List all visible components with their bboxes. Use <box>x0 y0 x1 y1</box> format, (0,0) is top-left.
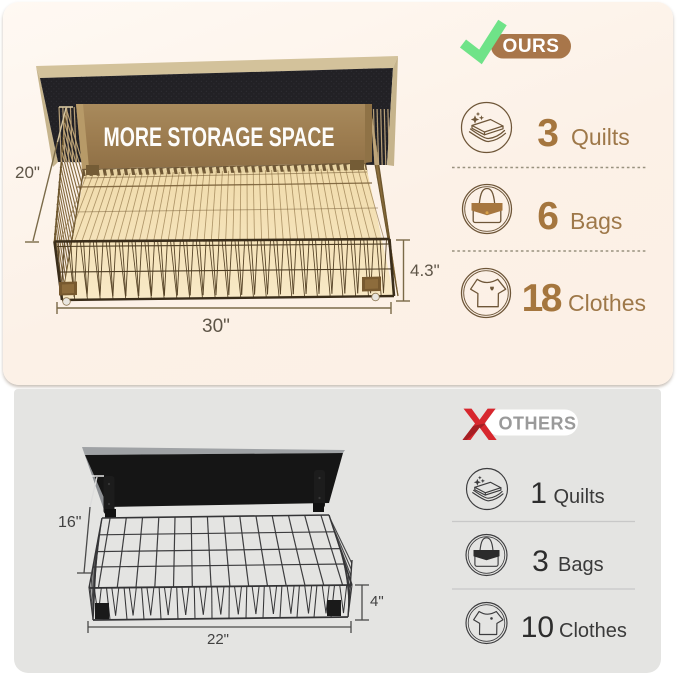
svg-text:OURS: OURS <box>503 36 560 57</box>
svg-text:MORE STORAGE SPACE: MORE STORAGE SPACE <box>104 122 335 152</box>
svg-text:OTHERS: OTHERS <box>498 414 576 434</box>
